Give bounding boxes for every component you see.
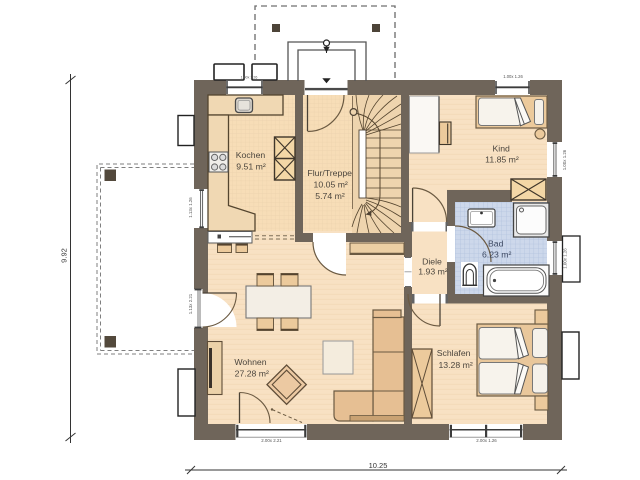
svg-text:2.00x 1.26: 2.00x 1.26 <box>476 438 497 443</box>
svg-text:9.92: 9.92 <box>60 248 69 263</box>
svg-text:Bad: Bad <box>488 239 504 249</box>
svg-text:1.00x 1.26: 1.00x 1.26 <box>503 74 523 79</box>
svg-text:Kochen: Kochen <box>236 150 266 160</box>
svg-text:1.00x 1.26: 1.00x 1.26 <box>562 149 567 170</box>
svg-text:27.28 m²: 27.28 m² <box>235 368 269 378</box>
svg-text:1.13x 2.21: 1.13x 2.21 <box>188 293 193 314</box>
svg-text:Schlafen: Schlafen <box>437 348 471 358</box>
svg-text:9.51 m²: 9.51 m² <box>236 162 266 172</box>
svg-text:10.25: 10.25 <box>369 461 388 470</box>
svg-text:Flur/Treppe: Flur/Treppe <box>307 168 352 178</box>
svg-text:11.85 m²: 11.85 m² <box>485 155 519 165</box>
svg-text:1.13x 1.26: 1.13x 1.26 <box>188 197 193 218</box>
svg-text:5.74 m²: 5.74 m² <box>315 191 345 201</box>
svg-text:Wohnen: Wohnen <box>234 357 266 367</box>
svg-text:13.28 m²: 13.28 m² <box>438 360 472 370</box>
svg-text:Diele: Diele <box>422 256 442 266</box>
svg-text:1.93 m²: 1.93 m² <box>418 267 448 277</box>
svg-text:2.00x 2.21: 2.00x 2.21 <box>261 438 282 443</box>
svg-text:1.00x 1.26: 1.00x 1.26 <box>241 76 258 80</box>
svg-text:Kind: Kind <box>493 143 511 153</box>
svg-text:6.23 m²: 6.23 m² <box>482 250 512 260</box>
svg-text:1.00x 1.26: 1.00x 1.26 <box>563 248 568 269</box>
svg-text:10.05 m²: 10.05 m² <box>314 180 348 190</box>
